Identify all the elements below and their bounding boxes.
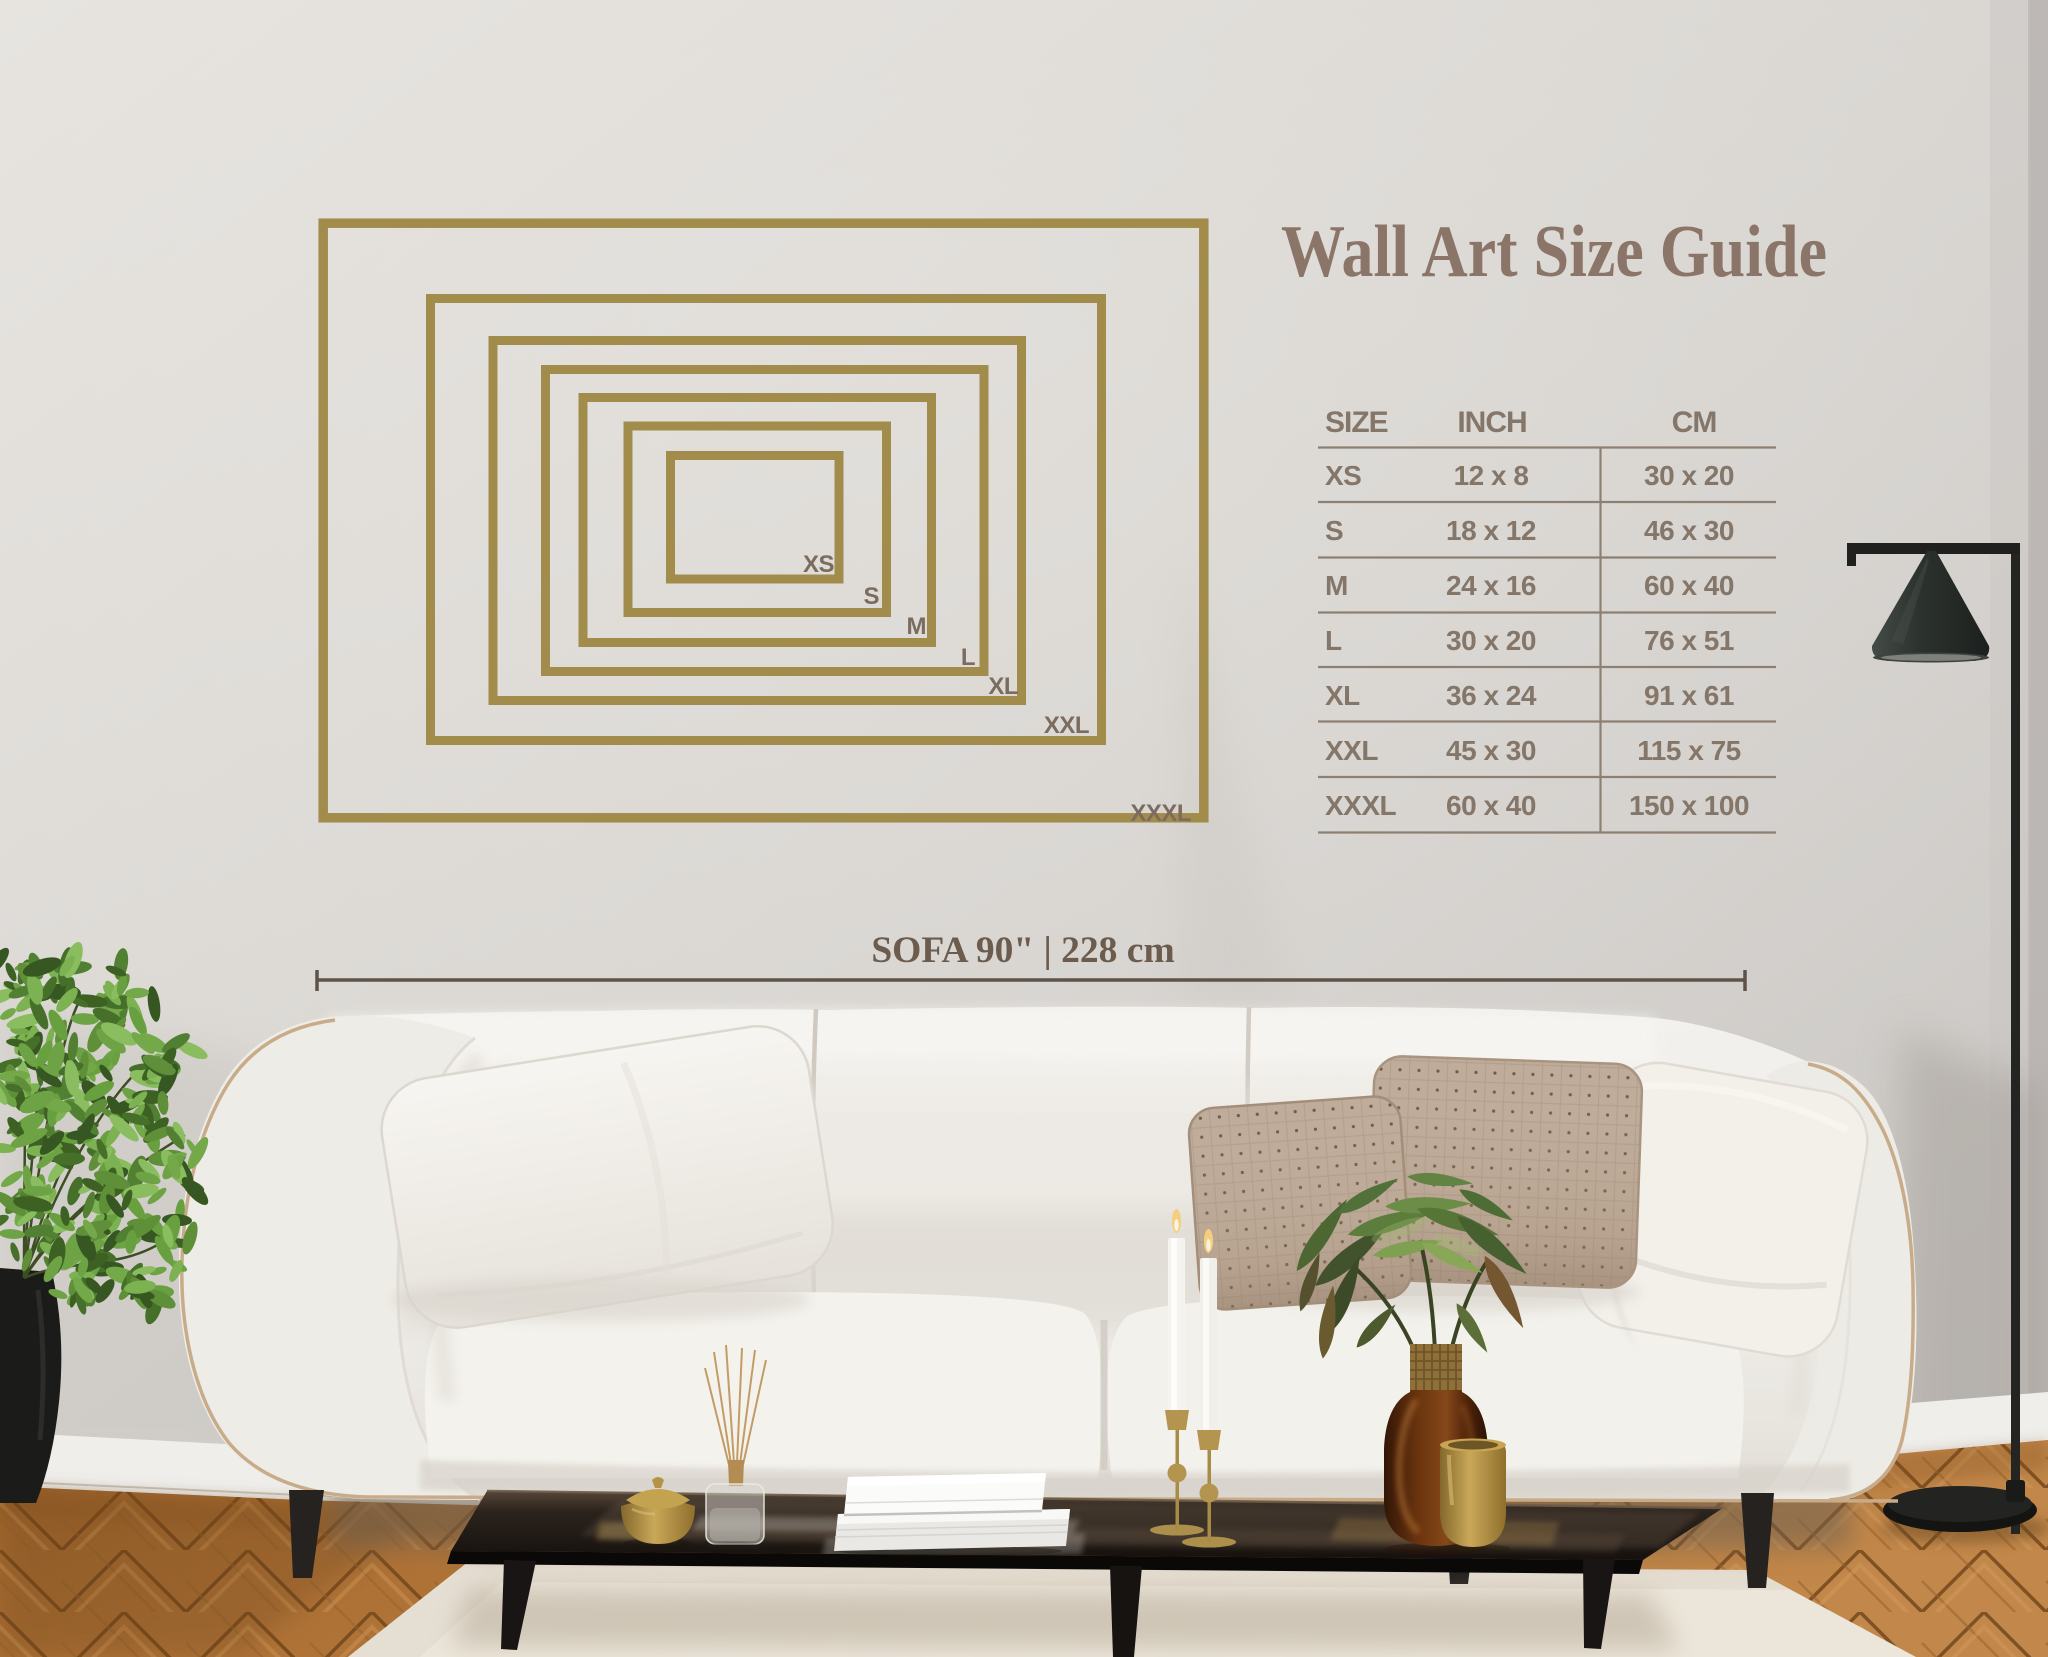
- svg-text:XXL: XXL: [1044, 712, 1089, 739]
- svg-text:76 x 51: 76 x 51: [1644, 625, 1734, 656]
- svg-text:60 x 40: 60 x 40: [1644, 570, 1734, 601]
- svg-text:XXXL: XXXL: [1130, 800, 1191, 827]
- svg-text:36 x 24: 36 x 24: [1446, 680, 1537, 711]
- svg-text:CM: CM: [1672, 406, 1717, 439]
- svg-text:M: M: [907, 613, 927, 640]
- svg-text:L: L: [1325, 625, 1342, 656]
- svg-text:XS: XS: [1325, 460, 1361, 491]
- svg-text:60 x 40: 60 x 40: [1446, 790, 1536, 821]
- svg-text:S: S: [1325, 515, 1343, 546]
- svg-text:L: L: [961, 644, 975, 671]
- svg-text:Wall Art Size Guide: Wall Art Size Guide: [1281, 211, 1827, 293]
- svg-text:150 x 100: 150 x 100: [1629, 790, 1749, 821]
- svg-text:XL: XL: [988, 673, 1018, 700]
- svg-text:46 x 30: 46 x 30: [1644, 515, 1734, 546]
- svg-text:30 x 20: 30 x 20: [1446, 625, 1536, 656]
- svg-text:SOFA 90" | 228 cm: SOFA 90" | 228 cm: [871, 930, 1174, 971]
- svg-text:30 x 20: 30 x 20: [1644, 460, 1734, 491]
- svg-text:115 x 75: 115 x 75: [1637, 735, 1740, 766]
- svg-text:12 x 8: 12 x 8: [1454, 460, 1529, 491]
- svg-text:24 x 16: 24 x 16: [1446, 570, 1536, 601]
- svg-text:XXXL: XXXL: [1325, 790, 1397, 821]
- svg-text:XS: XS: [803, 551, 835, 578]
- svg-text:INCH: INCH: [1457, 406, 1526, 439]
- svg-text:M: M: [1325, 570, 1348, 601]
- svg-text:XXL: XXL: [1325, 735, 1378, 766]
- svg-text:XL: XL: [1325, 680, 1360, 711]
- svg-text:SIZE: SIZE: [1325, 406, 1388, 439]
- svg-text:45 x 30: 45 x 30: [1446, 735, 1536, 766]
- svg-text:S: S: [863, 583, 879, 610]
- svg-text:91 x 61: 91 x 61: [1644, 680, 1734, 711]
- svg-text:18 x 12: 18 x 12: [1446, 515, 1536, 546]
